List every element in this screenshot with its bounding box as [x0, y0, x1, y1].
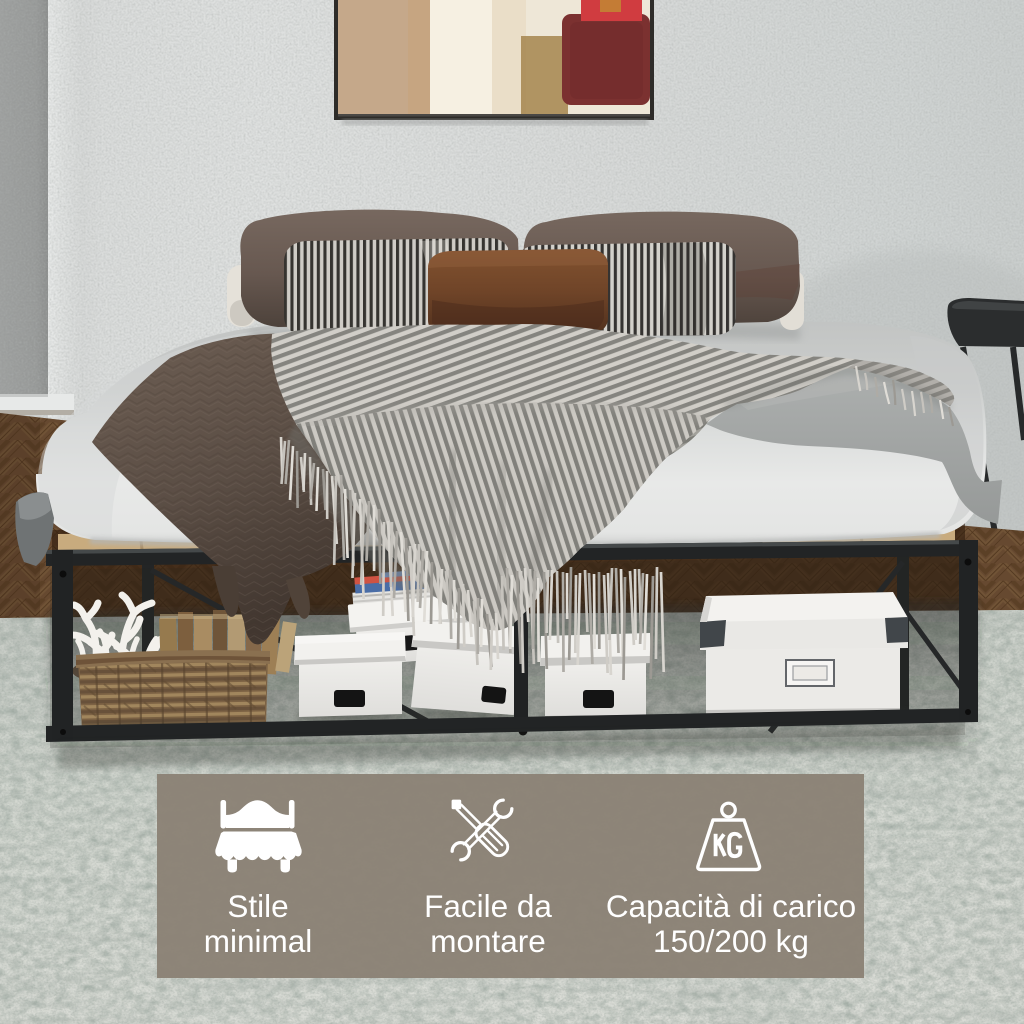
- svg-text:Capacità di carico: Capacità di carico: [606, 888, 856, 924]
- svg-text:minimal: minimal: [204, 923, 313, 959]
- svg-text:montare: montare: [430, 923, 546, 959]
- svg-text:150/200 kg: 150/200 kg: [653, 923, 809, 959]
- svg-text:Stile: Stile: [227, 888, 288, 924]
- svg-text:Facile da: Facile da: [424, 888, 552, 924]
